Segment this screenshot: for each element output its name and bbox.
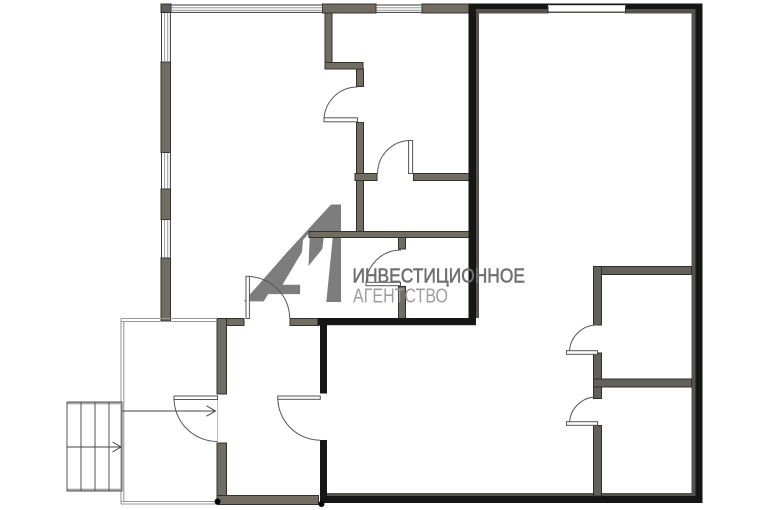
svg-text:АГЕНТСТВО: АГЕНТСТВО bbox=[353, 286, 448, 308]
svg-text:ИНВЕСТИЦИОННОЕ: ИНВЕСТИЦИОННОЕ bbox=[353, 266, 526, 288]
